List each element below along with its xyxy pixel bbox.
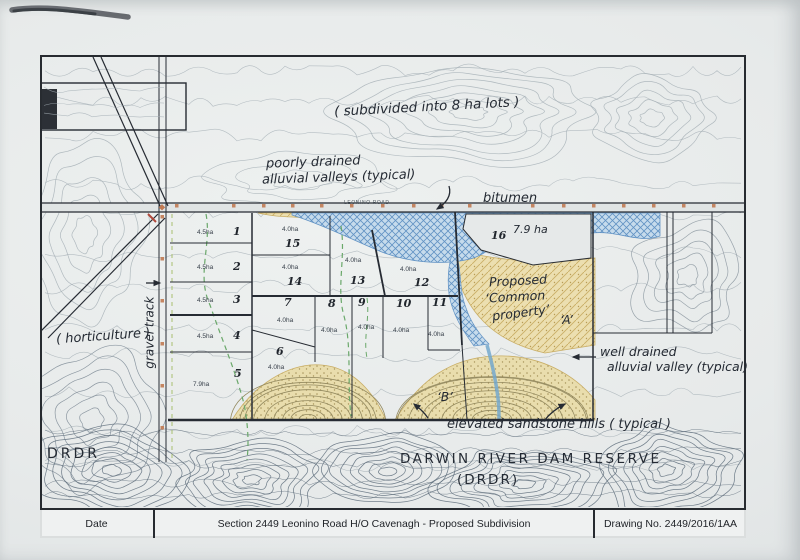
lot-10-number: 10 xyxy=(396,297,411,310)
lot-13-area: 4.0ha xyxy=(345,257,361,264)
annotation-drdr: DRDR xyxy=(47,446,100,462)
lot-11-area: 4.0ha xyxy=(428,331,444,338)
lot-16-area: 7.9 ha xyxy=(513,223,548,236)
title-block: Date Section 2449 Leonino Road H/O Caven… xyxy=(40,508,746,538)
lot-4-area: 4.5ha xyxy=(197,333,213,340)
scanned-plan-page: LEONINO ROAD ( subdivided into 8 ha lots… xyxy=(0,0,800,560)
lot-8-area: 4.0ha xyxy=(321,327,337,334)
lot-14-area: 4.0ha xyxy=(282,264,298,271)
lot-12-area: 4.0ha xyxy=(400,266,416,273)
annotation-elevated-sandstone: elevated sandstone hills ( typical ) xyxy=(447,418,671,432)
lot-2-area: 4.5ha xyxy=(197,264,213,271)
lot-3-area: 4.5ha xyxy=(197,297,213,304)
lot-6-area: 4.0ha xyxy=(268,364,284,371)
title-block-date-cell: Date xyxy=(40,510,155,538)
lot-1-area: 4.5ha xyxy=(197,229,213,236)
lot-3-number: 3 xyxy=(233,293,241,306)
lot-13-number: 13 xyxy=(350,274,365,287)
lot-5-number: 5 xyxy=(234,367,242,380)
leonino-road-label: LEONINO ROAD xyxy=(344,200,390,206)
annotation-well-drained-line1: well drained xyxy=(600,345,677,359)
lot-7-number: 7 xyxy=(284,296,292,309)
title-block-title-cell: Section 2449 Leonino Road H/O Cavenagh -… xyxy=(155,510,595,538)
lot-2-number: 2 xyxy=(233,260,241,273)
lot-9-area: 4.0ha xyxy=(358,324,374,331)
lot-6-number: 6 xyxy=(276,345,284,358)
lot-7-area: 4.0ha xyxy=(277,317,293,324)
lot-16-number: 16 xyxy=(491,229,506,242)
annotation-bitumen: bitumen xyxy=(483,192,537,206)
annotation-well-drained-line2: alluvial valley (typical) xyxy=(607,360,748,374)
lot-10-area: 4.0ha xyxy=(393,327,409,334)
lot-8-number: 8 xyxy=(328,297,336,310)
lot-15-area: 4.0ha xyxy=(282,226,298,233)
annotation-gravel-track: gravel track xyxy=(143,287,156,379)
lot-9-number: 9 xyxy=(358,296,366,309)
lot-14-number: 14 xyxy=(287,275,302,288)
lot-5-area: 7.9ha xyxy=(193,381,209,388)
lot-15-number: 15 xyxy=(285,237,300,250)
lot-11-number: 11 xyxy=(432,296,447,309)
annotation-dam-reserve-line2: (DRDR) xyxy=(457,472,519,488)
label-a: ‘A’ xyxy=(560,314,573,327)
label-b: ‘B’ xyxy=(437,391,453,404)
lot-12-number: 12 xyxy=(414,276,429,289)
lot-4-number: 4 xyxy=(233,329,241,342)
annotation-dam-reserve-line1: DARWIN RIVER DAM RESERVE xyxy=(400,451,662,467)
title-block-drawing-no-cell: Drawing No. 2449/2016/1AA xyxy=(595,510,746,538)
lot-1-number: 1 xyxy=(233,225,241,238)
